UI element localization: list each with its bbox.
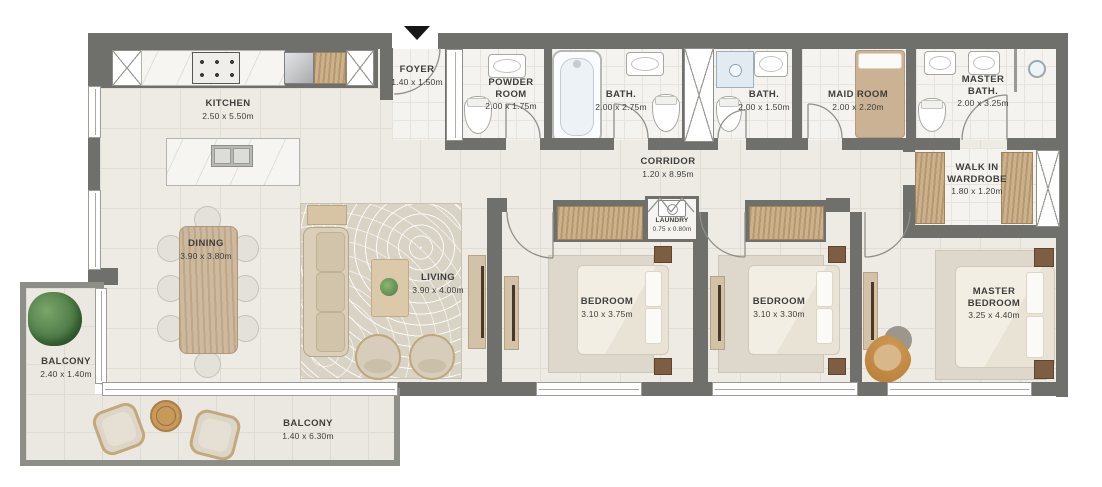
room-label-bath-1: BATH. 2.00 x 2.75m (595, 89, 647, 112)
tv-icon (871, 282, 874, 340)
pillow-icon (645, 271, 662, 307)
outdoor-table-icon (150, 400, 182, 432)
room-name: CORRIDOR (641, 156, 696, 168)
tv-icon (718, 285, 721, 341)
sink-icon (754, 51, 788, 77)
island-sink-icon (211, 145, 253, 167)
room-label-maid-room: MAID ROOM 2.00 x 2.20m (821, 89, 895, 112)
wall (640, 382, 712, 396)
window (88, 86, 101, 138)
room-label-living: LIVING 3.90 x 4.00m (412, 272, 464, 295)
wall (826, 198, 850, 212)
room-dims: 3.10 x 3.75m (581, 309, 633, 319)
wall (903, 225, 1056, 238)
wall (88, 33, 392, 49)
wall (540, 138, 614, 150)
room-name: BALCONY (282, 418, 334, 430)
washer-icon (658, 200, 686, 217)
room-name: MAID ROOM (821, 89, 895, 101)
shaft-icon (346, 50, 374, 86)
room-label-bedroom-1: BEDROOM 3.10 x 3.75m (581, 296, 633, 319)
tv-icon (512, 285, 515, 341)
balcony-wall (20, 460, 400, 466)
nightstand-icon (828, 246, 846, 263)
room-name: BEDROOM (581, 296, 633, 308)
floor-plan: KITCHEN 2.50 x 5.50m FOYER 1.40 x 1.50m … (0, 0, 1102, 487)
wall (903, 138, 915, 152)
room-name: DINING (180, 238, 232, 250)
room-name: POWDER ROOM (482, 77, 540, 100)
window (536, 382, 642, 396)
room-dims: 3.90 x 4.00m (412, 285, 464, 295)
window (95, 288, 107, 384)
plant-icon (28, 292, 82, 346)
wardrobe-icon (557, 206, 643, 240)
room-dims: 1.80 x 1.20m (941, 186, 1013, 196)
wall (1030, 382, 1068, 396)
lounge-chair-icon (409, 334, 455, 380)
wall (487, 198, 502, 385)
wall (544, 48, 552, 140)
kitchen-sink-icon (284, 52, 314, 84)
room-dims: 2.40 x 1.40m (40, 369, 92, 379)
sink-icon (968, 51, 1000, 75)
pillow-icon (645, 308, 662, 344)
room-label-bedroom-2: BEDROOM 3.10 x 3.30m (753, 296, 805, 319)
room-name: MASTER BEDROOM (961, 286, 1027, 309)
room-name: KITCHEN (202, 98, 254, 110)
console-table-icon (307, 205, 347, 225)
nightstand-icon (654, 358, 672, 375)
nightstand-icon (1034, 360, 1054, 379)
entrance-arrow-icon (404, 26, 430, 40)
shower-head-icon (1028, 60, 1046, 78)
plant-icon (380, 278, 398, 296)
shower-icon (716, 51, 754, 88)
room-dims: 1.20 x 8.95m (641, 169, 696, 179)
lounge-chair-icon (355, 334, 401, 380)
room-name: BATH. (738, 89, 790, 101)
room-name: LIVING (412, 272, 464, 284)
wardrobe-icon (749, 206, 824, 240)
sofa-icon (303, 227, 349, 357)
shaft-icon (112, 50, 142, 86)
sink-icon (626, 52, 664, 76)
room-label-bath-2: BATH. 2.00 x 1.50m (738, 89, 790, 112)
window (887, 382, 1032, 396)
balcony-wall (20, 282, 104, 288)
room-label-balcony-main: BALCONY 1.40 x 6.30m (282, 418, 334, 441)
shower-partition (1014, 48, 1017, 92)
nightstand-icon (654, 246, 672, 263)
nightstand-icon (828, 358, 846, 375)
room-name: BATH. (595, 89, 647, 101)
linen-closet-icon (684, 48, 714, 142)
balcony-wall (20, 282, 26, 466)
room-name: MASTER BATH. (953, 74, 1013, 97)
room-name: WALK IN WARDROBE (941, 162, 1013, 185)
closet-icon (446, 49, 463, 141)
wall (1007, 138, 1056, 150)
room-name: FOYER (391, 64, 443, 76)
room-label-laundry: LAUNDRY 0.75 x 0.80m (647, 217, 697, 234)
dining-chair-icon (194, 351, 221, 378)
wall (746, 138, 808, 150)
room-dims: 0.75 x 0.80m (647, 226, 697, 234)
wall (906, 48, 916, 140)
room-label-corridor: CORRIDOR 1.20 x 8.95m (641, 156, 696, 179)
window (88, 190, 101, 270)
room-dims: 1.40 x 1.50m (391, 77, 443, 87)
wall (856, 382, 887, 396)
room-label-foyer: FOYER 1.40 x 1.50m (391, 64, 443, 87)
room-label-dining: DINING 3.90 x 3.80m (180, 238, 232, 261)
window (102, 382, 398, 396)
stove-icon (192, 52, 240, 84)
tv-icon (481, 266, 484, 338)
pillow-icon (816, 308, 833, 344)
wall (396, 382, 536, 396)
pillow-icon (858, 53, 902, 69)
sink-icon (924, 51, 956, 75)
pillow-icon (1026, 272, 1044, 314)
room-dims: 3.10 x 3.30m (753, 309, 805, 319)
room-dims: 2.00 x 1.75m (482, 101, 540, 111)
wall (792, 48, 802, 140)
room-dims: 2.00 x 2.75m (595, 102, 647, 112)
room-label-master-bedroom: MASTER BEDROOM 3.25 x 4.40m (961, 286, 1027, 321)
pillow-icon (1026, 316, 1044, 358)
sink-icon (488, 54, 526, 78)
room-name: LAUNDRY (647, 217, 697, 225)
window (712, 382, 858, 396)
room-dims: 3.25 x 4.40m (961, 310, 1027, 320)
room-dims: 1.40 x 6.30m (282, 431, 334, 441)
pillow-icon (816, 271, 833, 307)
balcony-wall (394, 388, 400, 466)
room-label-master-bath: MASTER BATH. 2.00 x 3.25m (953, 74, 1013, 109)
wall (850, 212, 862, 385)
room-name: BALCONY (40, 356, 92, 368)
wall (438, 33, 1068, 49)
room-label-walk-in-wardrobe: WALK IN WARDROBE 1.80 x 1.20m (941, 162, 1013, 197)
room-label-balcony-side: BALCONY 2.40 x 1.40m (40, 356, 92, 379)
room-dims: 2.50 x 5.50m (202, 111, 254, 121)
room-label-kitchen: KITCHEN 2.50 x 5.50m (202, 98, 254, 121)
room-dims: 2.00 x 2.20m (821, 102, 895, 112)
cabinet-icon (314, 52, 346, 84)
room-label-powder-room: POWDER ROOM 2.00 x 1.75m (482, 77, 540, 112)
nightstand-icon (1034, 248, 1054, 267)
foyer-floor (392, 48, 445, 140)
shaft-icon (1036, 150, 1060, 227)
room-name: BEDROOM (753, 296, 805, 308)
wall (842, 138, 960, 150)
room-dims: 2.00 x 3.25m (953, 98, 1013, 108)
room-dims: 3.90 x 3.80m (180, 251, 232, 261)
room-dims: 2.00 x 1.50m (738, 102, 790, 112)
